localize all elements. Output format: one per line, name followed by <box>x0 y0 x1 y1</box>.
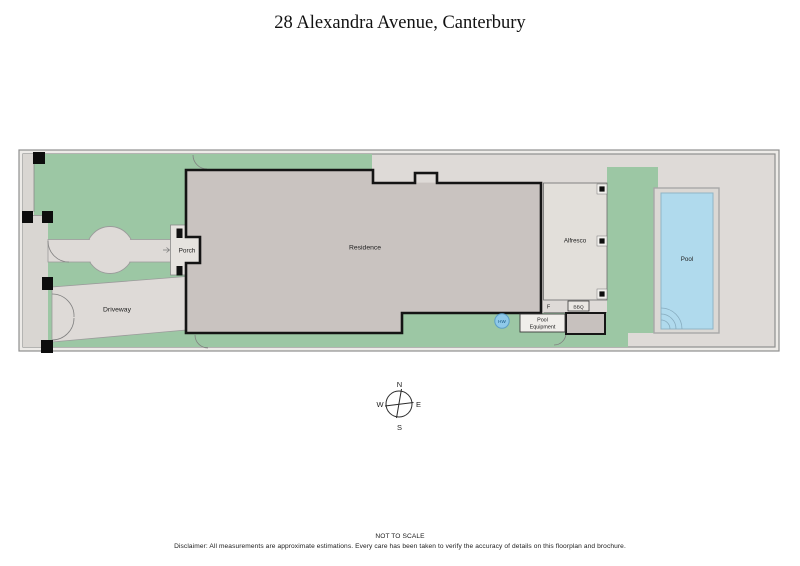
alfresco-label: Alfresco <box>564 238 587 245</box>
alfresco-post-top <box>597 184 607 194</box>
fence-post <box>33 152 45 164</box>
porch-post-bottom <box>177 266 183 276</box>
fence-post <box>22 211 33 223</box>
site-plan: Residence Porch Driveway Alfresco Pool F… <box>0 0 800 566</box>
pool-label: Pool <box>681 256 693 263</box>
front-path-fill <box>49 240 185 261</box>
porch-label: Porch <box>179 248 196 255</box>
fence-post <box>41 340 53 353</box>
lawn-top-strip <box>186 154 372 171</box>
porch-post-top <box>177 229 183 239</box>
hot-water-label: HW <box>498 319 506 324</box>
compass-w-label: W <box>376 400 384 409</box>
disclaimer-text: Disclaimer: All measurements are approxi… <box>0 543 800 550</box>
alfresco-post-middle <box>597 236 607 246</box>
driveway-label: Driveway <box>103 307 132 314</box>
compass-s-label: S <box>397 423 402 432</box>
fence-post <box>42 211 53 223</box>
pool-equipment-label-line1: Pool <box>537 318 548 324</box>
compass-e-label: E <box>416 400 421 409</box>
shed <box>566 313 605 334</box>
residence-bay-notch <box>417 175 436 183</box>
fence-post <box>42 277 53 290</box>
floorplan-page: 28 Alexandra Avenue, Canterbury <box>0 0 800 566</box>
verge-side-strip <box>23 154 34 215</box>
alfresco-post-bottom <box>597 289 607 299</box>
lawn-right-strip <box>607 167 658 333</box>
pool-equipment-label-line2: Equipment <box>530 325 556 331</box>
residence-outline <box>186 170 541 333</box>
compass: N E S W <box>376 380 421 432</box>
residence-label: Residence <box>349 245 381 252</box>
scale-note: NOT TO SCALE <box>0 533 800 540</box>
compass-n-label: N <box>397 380 402 389</box>
bbq-label: BBQ <box>573 305 584 311</box>
